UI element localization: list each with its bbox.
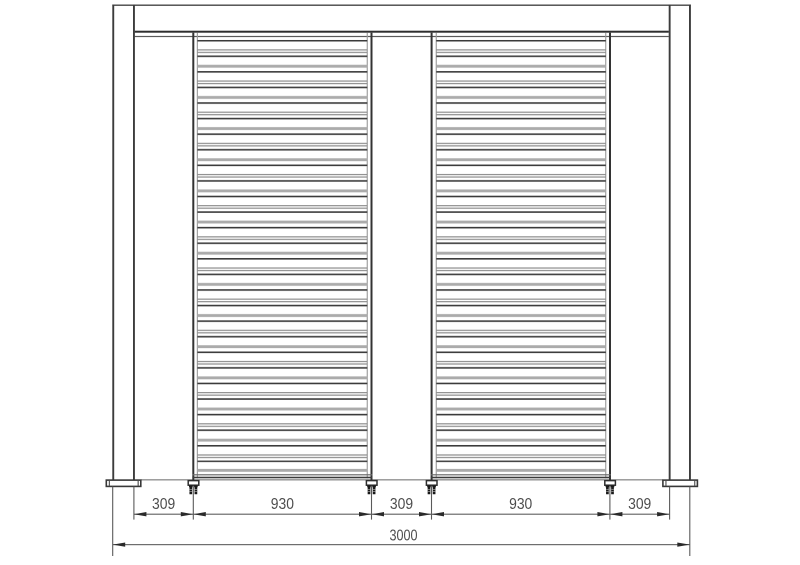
svg-text:930: 930 — [509, 496, 533, 513]
svg-text:309: 309 — [390, 496, 413, 513]
svg-text:309: 309 — [152, 496, 175, 513]
svg-text:309: 309 — [628, 496, 651, 513]
svg-text:930: 930 — [271, 496, 295, 513]
svg-text:3000: 3000 — [390, 527, 418, 544]
